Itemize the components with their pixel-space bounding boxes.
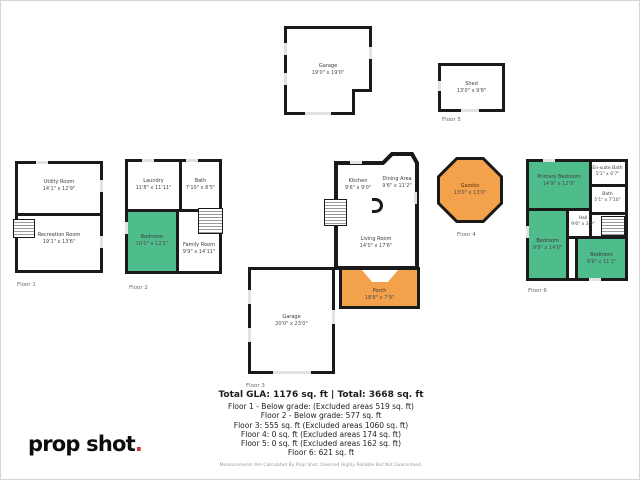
floor6-plan: Primary Bedroom 14'9" x 12'9" En-suite B…: [526, 159, 628, 281]
bay-notch: [362, 270, 398, 282]
window-marker: [186, 159, 198, 162]
floor3-main-plan: Kitchen 9'6" x 9'0" Dining Area 9'6" x 1…: [334, 152, 419, 270]
room-name: Family Room: [179, 242, 219, 249]
wall-divider: [566, 208, 569, 278]
room-dims: 13'0" x 9'8": [441, 88, 502, 95]
room-label-hall: Hall 9'6" x 3'0": [567, 216, 599, 228]
wall-divider: [575, 239, 578, 278]
floor3-garage-plan: Garage 20'0" x 23'0": [248, 267, 335, 374]
window-marker: [543, 159, 555, 162]
stairs: [601, 216, 625, 236]
disclaimer: Measurements Are Calculated By Prop Shot…: [1, 463, 640, 468]
gazebo-plan: Gazebo 13'0" x 13'0": [437, 157, 503, 223]
bedroom-area: [128, 212, 176, 271]
door-marker: [461, 109, 479, 112]
window-marker: [248, 290, 251, 304]
wall-divider: [179, 162, 182, 209]
detached-garage-plan: Garage 19'0" x 19'0": [284, 26, 372, 115]
wall-divider: [529, 208, 589, 211]
window-marker: [369, 47, 372, 59]
room-dims: 5'1" x 7'10": [590, 198, 625, 204]
window-marker: [100, 180, 103, 192]
floor2-plan: Laundry 11'8" x 11'11" Bath 7'10" x 8'5"…: [125, 159, 222, 274]
bedroom-left-area: [529, 211, 566, 278]
summary-line-floor1: Floor 1 - Below grade: (Excluded areas 5…: [1, 402, 640, 411]
garage-door-marker: [273, 371, 311, 374]
room-name: Garage: [251, 314, 332, 321]
floor4-label: Floor 4: [457, 232, 476, 238]
room-name: Hall: [567, 216, 599, 222]
room-dims: 18'8" x 7'9": [342, 295, 417, 302]
window-marker: [284, 73, 287, 85]
porch-plan: Porch 18'8" x 7'9": [339, 267, 420, 309]
floor1-label: Floor 1: [17, 282, 36, 288]
logo-dot: .: [135, 432, 142, 456]
room-label-bath: Bath 7'10" x 8'5": [182, 178, 219, 191]
window-marker: [36, 161, 48, 164]
room-name: En-suite Bath: [590, 166, 625, 172]
room-label-utility: Utility Room 14'1" x 12'9": [18, 179, 100, 192]
room-dims: 20'0" x 23'0": [251, 321, 332, 328]
summary-line-floor3: Floor 3: 555 sq. ft (Excluded areas 1060…: [1, 421, 640, 430]
garage-door-marker: [305, 112, 331, 115]
room-name: Bath: [590, 192, 625, 198]
floor5-label: Floor 5: [442, 117, 461, 123]
room-label-shed: Shed 13'0" x 9'8": [441, 81, 502, 94]
room-dims: 19'0" x 19'0": [287, 70, 369, 77]
bedroom-right-area: [578, 239, 625, 278]
window-marker: [414, 192, 417, 204]
window-marker: [350, 161, 362, 164]
room-name: Porch: [342, 288, 417, 295]
floor-plan-sheet: Utility Room 14'1" x 12'9" Recreation Ro…: [0, 0, 640, 480]
floor1-plan: Utility Room 14'1" x 12'9" Recreation Ro…: [15, 161, 103, 273]
room-label-garage-attached: Garage 20'0" x 23'0": [251, 314, 332, 327]
window-marker: [100, 236, 103, 248]
window-marker: [526, 226, 529, 238]
floor6-label: Floor 6: [528, 288, 547, 294]
room-name: Laundry: [128, 178, 179, 185]
window-marker: [284, 43, 287, 55]
room-label-garage: Garage 19'0" x 19'0": [287, 63, 369, 76]
stairs: [13, 219, 35, 238]
primary-bedroom-area: [529, 162, 589, 208]
floor3-label: Floor 3: [246, 383, 265, 389]
summary-line-floor2: Floor 2 - Below grade: 577 sq. ft: [1, 411, 640, 420]
window-marker: [248, 328, 251, 342]
prop-shot-logo: prop shot.: [28, 432, 142, 456]
shed-plan: Shed 13'0" x 9'8": [438, 63, 505, 112]
window-marker: [438, 81, 441, 91]
window-marker: [332, 310, 335, 324]
wall-divider: [589, 162, 592, 239]
room-label-porch: Porch 18'8" x 7'9": [342, 288, 417, 301]
room-dims: 5'1" x 6'7": [590, 172, 625, 178]
area-summary: Total GLA: 1176 sq. ft | Total: 3668 sq.…: [1, 390, 640, 468]
room-name: Garage: [287, 63, 369, 70]
room-dims: 14'1" x 12'9": [18, 186, 100, 193]
room-label-laundry: Laundry 11'8" x 11'11": [128, 178, 179, 191]
wall-divider: [18, 213, 100, 216]
room-name: Utility Room: [18, 179, 100, 186]
room-label-ensuite-bath: En-suite Bath 5'1" x 6'7": [590, 166, 625, 178]
stairs: [324, 199, 347, 226]
room-name: Bath: [182, 178, 219, 185]
wall-divider: [589, 212, 625, 215]
wall-divider: [176, 212, 179, 271]
gazebo-floor: [440, 160, 500, 220]
room-dims: 9'9" x 14'11": [179, 249, 219, 256]
room-name: Shed: [441, 81, 502, 88]
wall-notch: [352, 89, 372, 115]
room-label-family-room: Family Room 9'9" x 14'11": [179, 242, 219, 255]
floor2-label: Floor 2: [129, 285, 148, 291]
room-label-bath: Bath 5'1" x 7'10": [590, 192, 625, 204]
room-dims: 7'10" x 8'5": [182, 185, 219, 192]
window-marker: [589, 278, 601, 281]
wall-divider: [589, 184, 625, 187]
stairs: [198, 208, 223, 234]
room-dims: 9'6" x 3'0": [567, 222, 599, 228]
room-dims: 19'1" x 13'6": [18, 239, 100, 246]
logo-text: prop shot: [28, 432, 135, 456]
summary-title: Total GLA: 1176 sq. ft | Total: 3668 sq.…: [1, 390, 640, 400]
room-dims: 11'8" x 11'11": [128, 185, 179, 192]
window-marker: [142, 159, 154, 162]
